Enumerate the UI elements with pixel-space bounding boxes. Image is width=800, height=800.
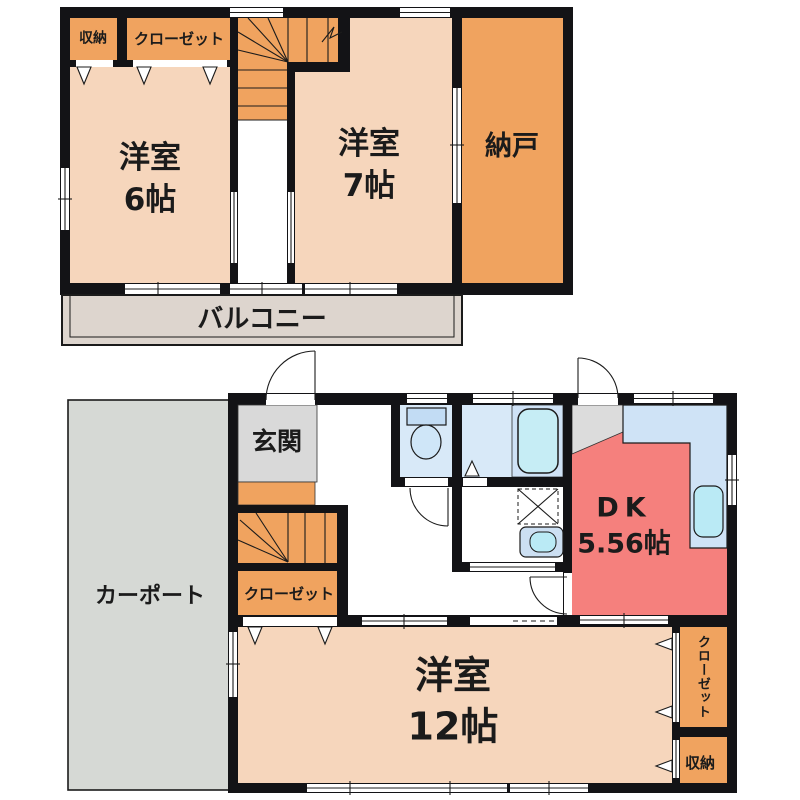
label-bedroom6-size: 6帖 <box>119 180 181 222</box>
label-balcony: バルコニー <box>197 302 326 337</box>
label-bedroom12-size: 12帖 <box>408 702 499 753</box>
label-closet-right: クローゼット <box>695 635 709 719</box>
label-carport: カーポート <box>95 582 205 612</box>
entrance-hall-step <box>238 482 315 505</box>
label-dk-name: DK <box>577 491 671 527</box>
label-dk-size: 5.56帖 <box>577 527 671 563</box>
floor1-plan <box>68 351 739 795</box>
kitchen-sink-icon <box>694 486 723 537</box>
room-bedroom7-upper <box>350 18 452 72</box>
label-nando: 納戸 <box>485 129 539 165</box>
label-storage-1f: 収納 <box>685 753 715 773</box>
vanity-sink-icon <box>520 527 563 557</box>
label-bedroom7: 洋室 7帖 <box>338 124 400 208</box>
floorplan-drawing <box>0 0 800 800</box>
label-dk: DK 5.56帖 <box>577 491 671 564</box>
label-bedroom6-name: 洋室 <box>119 138 181 180</box>
bathtub-icon <box>518 409 558 473</box>
label-bedroom6: 洋室 6帖 <box>119 138 181 222</box>
staircase-2f-lower <box>238 62 287 120</box>
label-entrance: 玄関 <box>252 425 302 459</box>
label-bedroom12-name: 洋室 <box>408 651 499 702</box>
label-bedroom12: 洋室 12帖 <box>408 651 499 754</box>
label-closet-2f: クローゼット <box>134 29 224 49</box>
label-bedroom7-name: 洋室 <box>338 124 400 166</box>
floorplan-page: 収納 クローゼット 洋室 6帖 洋室 7帖 納戸 バルコニー 玄関 カーポート … <box>0 0 800 800</box>
label-bedroom7-size: 7帖 <box>338 166 400 208</box>
washing-machine-icon <box>518 489 558 524</box>
label-storage-2f: 収納 <box>79 30 107 49</box>
washroom-sliding-door <box>470 563 555 571</box>
label-closet-hall: クローゼット <box>244 584 334 604</box>
